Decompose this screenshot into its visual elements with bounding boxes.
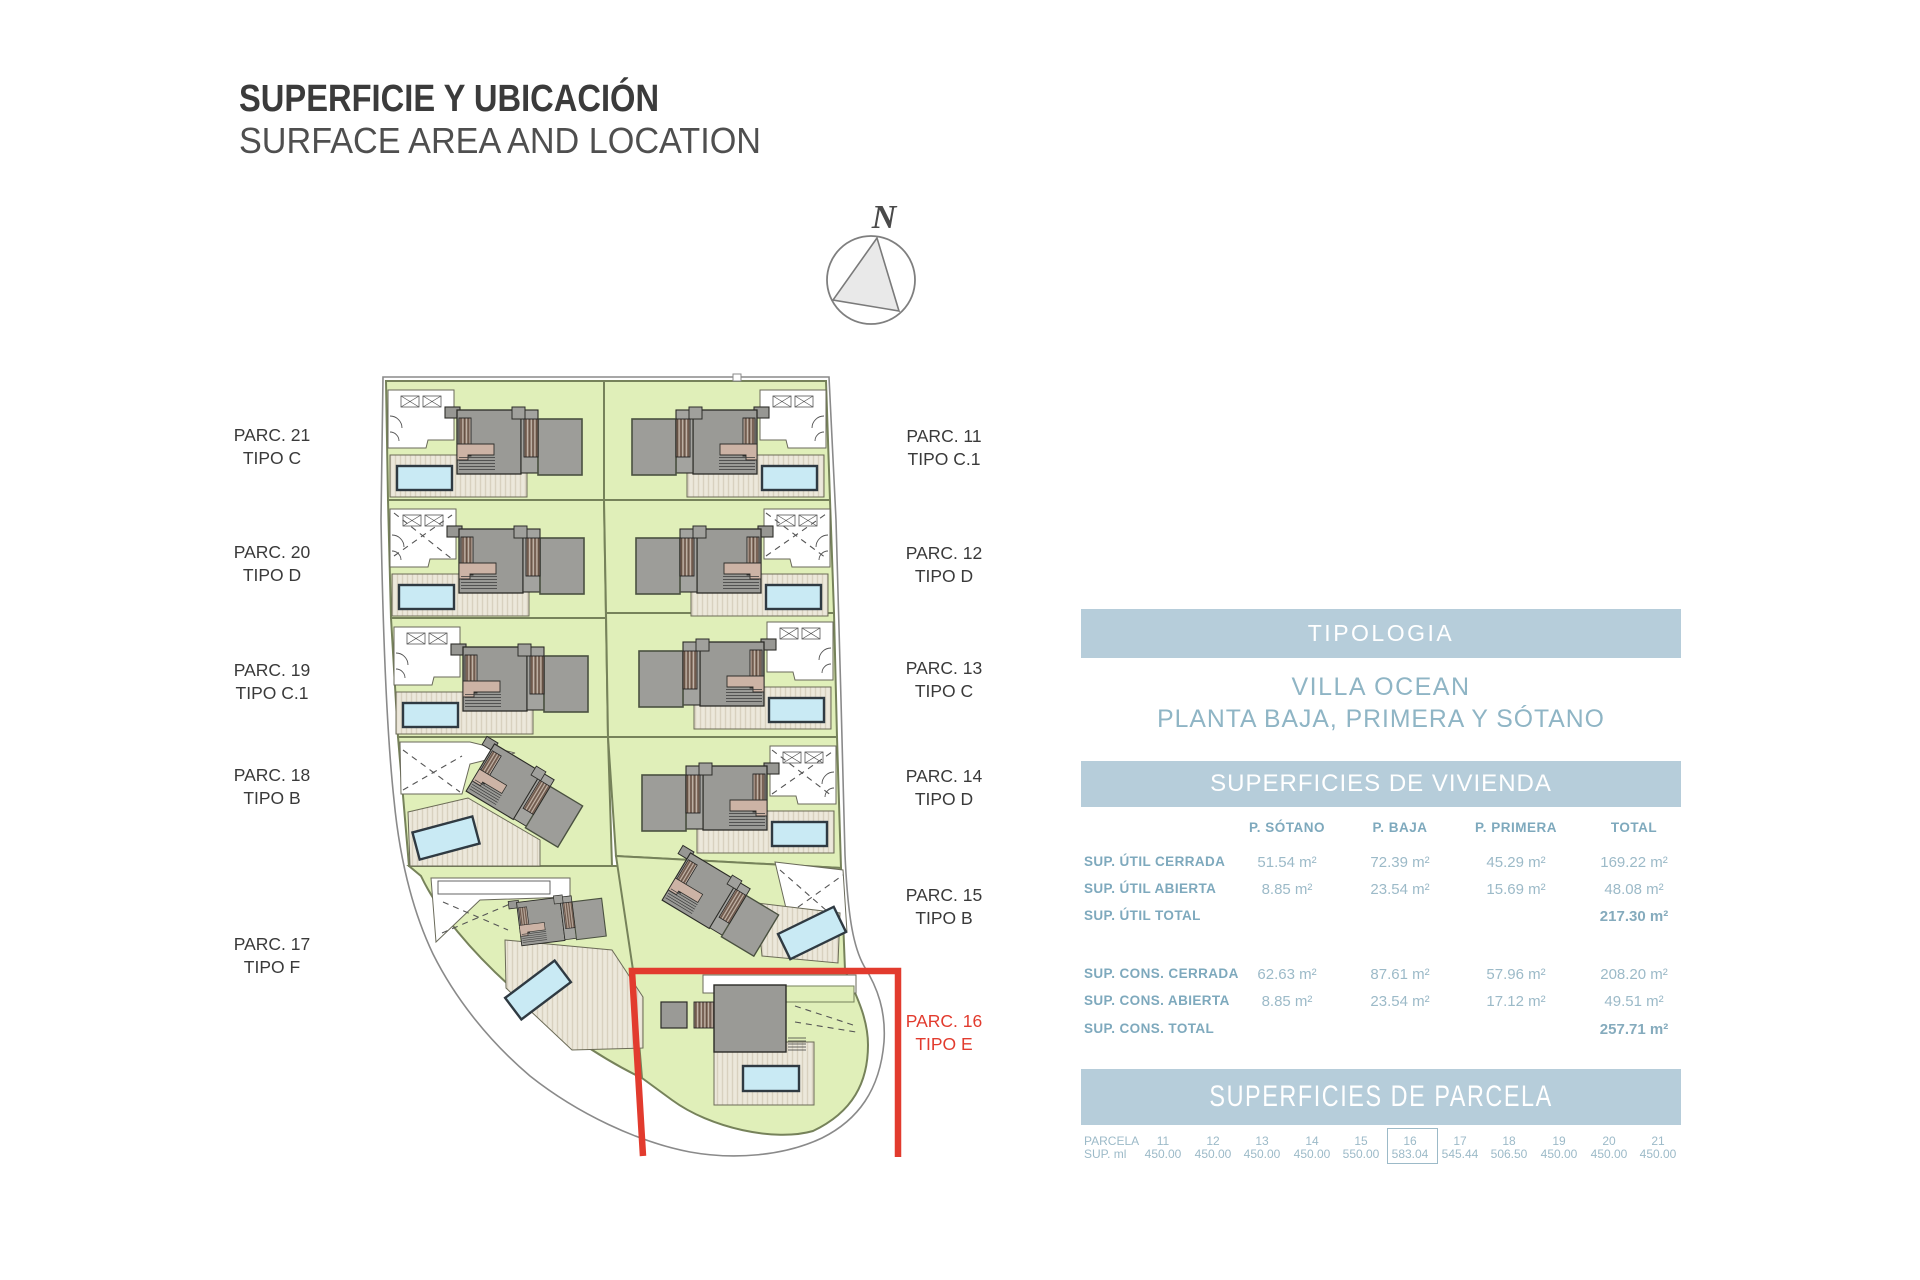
svg-text:N: N <box>871 199 898 236</box>
